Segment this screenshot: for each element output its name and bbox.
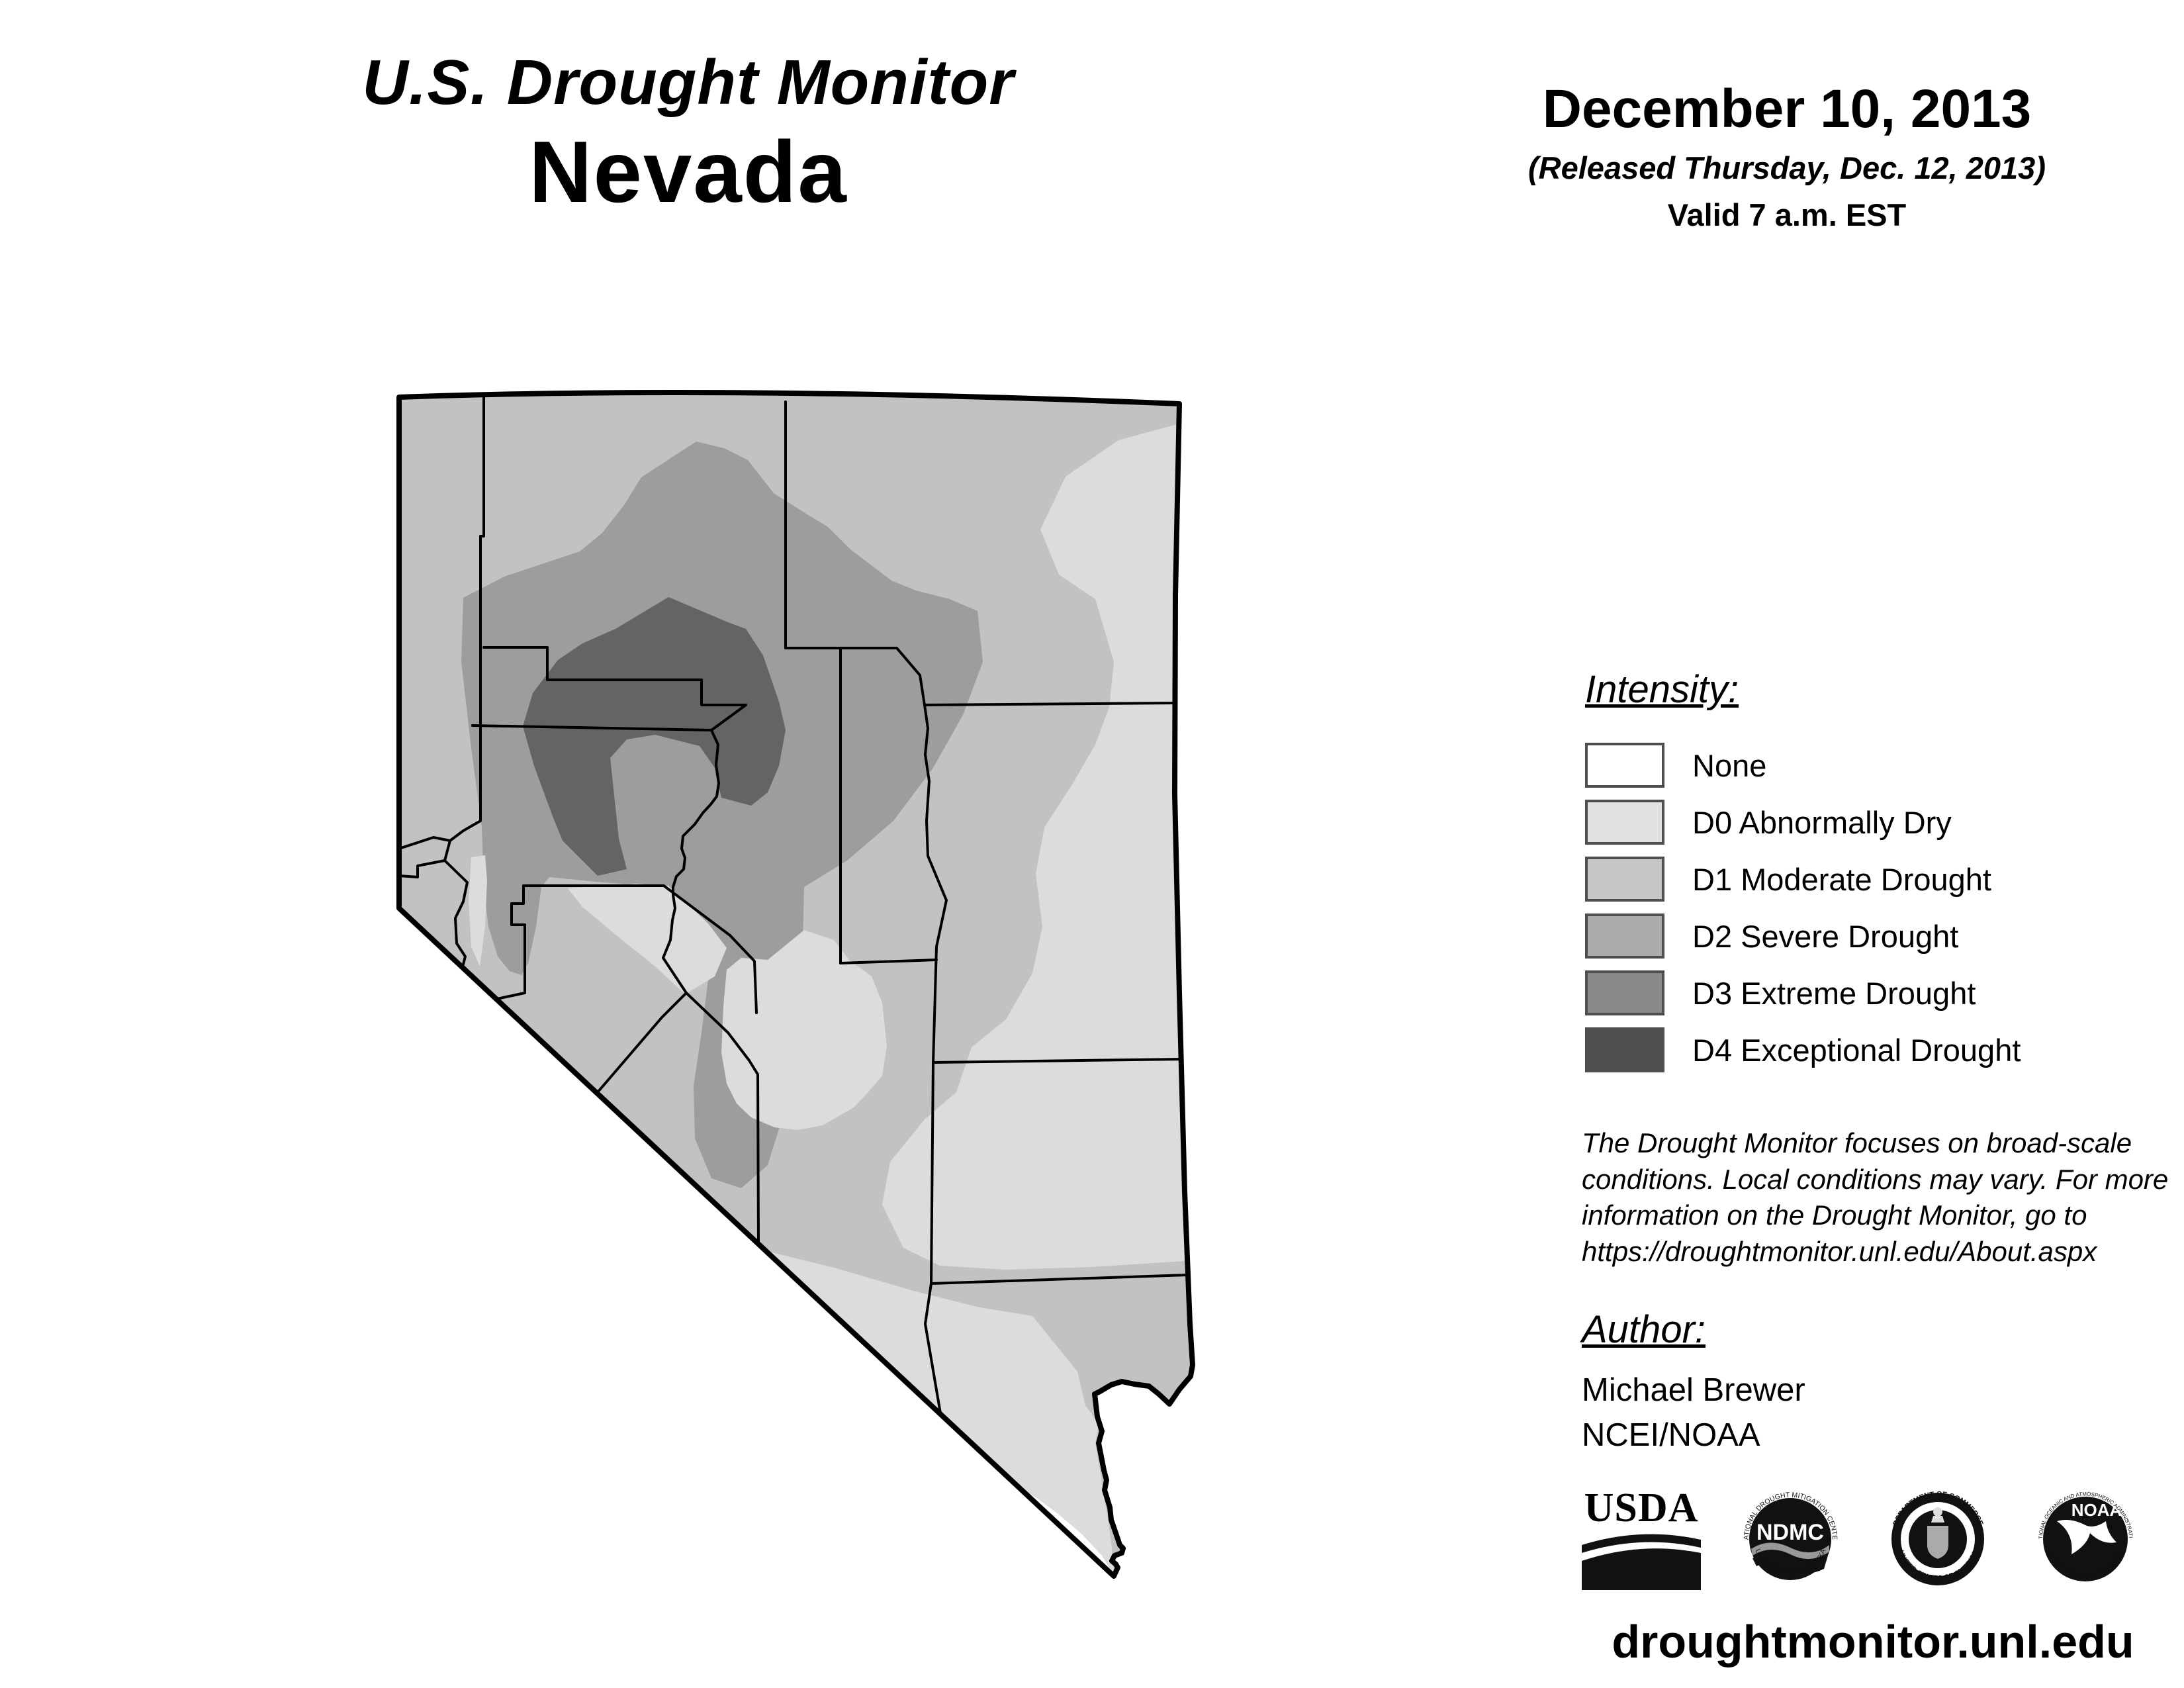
- map-date: December 10, 2013: [1403, 78, 2171, 140]
- legend-label-none: None: [1692, 747, 1766, 784]
- legend-row-d0: D0 Abnormally Dry: [1585, 794, 2167, 851]
- legend-label-d1: D1 Moderate Drought: [1692, 861, 1991, 898]
- ndmc-logo-text: NDMC: [1756, 1520, 1824, 1545]
- author-name: Michael Brewer: [1582, 1372, 1805, 1409]
- usda-logo: USDA: [1582, 1485, 1701, 1595]
- author-heading: Author:: [1582, 1307, 1706, 1352]
- legend-row-d1: D1 Moderate Drought: [1585, 851, 2167, 908]
- doc-seal-logo: DEPARTMENT OF COMMERCE UNITED STATES OF …: [1880, 1481, 1996, 1597]
- legend-swatch-d3: [1585, 970, 1664, 1015]
- author-org: NCEI/NOAA: [1582, 1417, 1760, 1454]
- footer-url: droughtmonitor.unl.edu: [1549, 1615, 2184, 1668]
- agency-logos: USDA NDMC NATIONAL DROUGHT MITIGATION CE…: [1582, 1481, 2164, 1597]
- noaa-logo: NOAA NATIONAL OCEANIC AND ATMOSPHERIC AD…: [2028, 1481, 2144, 1597]
- date-block: December 10, 2013 (Released Thursday, De…: [1403, 78, 2171, 233]
- legend-row-none: None: [1585, 737, 2167, 794]
- app-title: U.S. Drought Monitor: [278, 46, 1099, 119]
- intensity-legend: Intensity: None D0 Abnormally Dry D1 Mod…: [1585, 667, 2167, 1078]
- legend-swatch-d4: [1585, 1027, 1664, 1072]
- usda-logo-text: USDA: [1582, 1485, 1701, 1532]
- drought-monitor-page: U.S. Drought Monitor Nevada December 10,…: [0, 0, 2184, 1688]
- legend-row-d4: D4 Exceptional Drought: [1585, 1021, 2167, 1078]
- ndmc-logo: NDMC NATIONAL DROUGHT MITIGATION CENTER …: [1733, 1481, 1848, 1597]
- legend-label-d0: D0 Abnormally Dry: [1692, 804, 1952, 841]
- legend-swatch-none: [1585, 743, 1664, 788]
- state-title: Nevada: [278, 122, 1099, 222]
- legend-heading: Intensity:: [1585, 667, 2167, 712]
- usda-swoosh-icon: [1582, 1532, 1701, 1591]
- legend-swatch-d0: [1585, 800, 1664, 845]
- legend-row-d3: D3 Extreme Drought: [1585, 964, 2167, 1021]
- legend-label-d4: D4 Exceptional Drought: [1692, 1032, 2021, 1068]
- legend-label-d3: D3 Extreme Drought: [1692, 975, 1976, 1011]
- valid-time: Valid 7 a.m. EST: [1403, 197, 2171, 233]
- disclaimer-text: The Drought Monitor focuses on broad-sca…: [1582, 1125, 2184, 1270]
- legend-row-d2: D2 Severe Drought: [1585, 908, 2167, 964]
- legend-label-d2: D2 Severe Drought: [1692, 918, 1958, 955]
- legend-swatch-d2: [1585, 914, 1664, 959]
- title-block: U.S. Drought Monitor Nevada: [278, 46, 1099, 222]
- released-date: (Released Thursday, Dec. 12, 2013): [1403, 150, 2171, 186]
- legend-swatch-d1: [1585, 857, 1664, 902]
